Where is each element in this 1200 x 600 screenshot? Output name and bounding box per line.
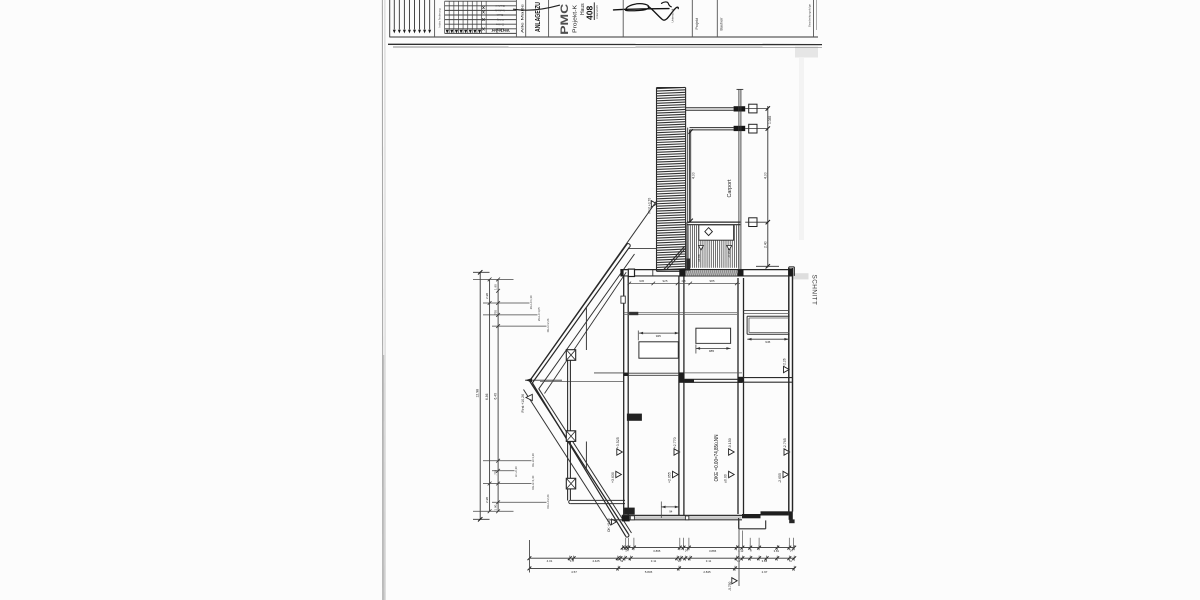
svg-text:4.00: 4.00 — [692, 172, 696, 179]
svg-text:4.00: 4.00 — [763, 172, 767, 179]
svg-text:925: 925 — [662, 279, 667, 283]
svg-text:Bearbeitungsfolge: Bearbeitungsfolge — [808, 4, 812, 27]
svg-text:Elektro: Elektro — [495, 22, 504, 26]
svg-text:1.90: 1.90 — [494, 504, 498, 510]
svg-text:PMC: PMC — [559, 4, 571, 35]
svg-text:Projekt: Projekt — [695, 18, 699, 29]
svg-text:Verteiler: Verteiler — [491, 28, 509, 33]
svg-text:KG·H=1,30: KG·H=1,30 — [531, 475, 535, 490]
svg-text:12.98: 12.98 — [476, 389, 480, 398]
svg-text:Unterschrift: Unterschrift — [595, 5, 599, 19]
svg-text:Carport: Carport — [727, 179, 733, 197]
svg-text:3.11: 3.11 — [651, 559, 657, 563]
svg-text:Unterschrift: Unterschrift — [671, 9, 675, 23]
svg-text:6.86: 6.86 — [485, 393, 489, 400]
svg-text:+3.630: +3.630 — [611, 472, 615, 483]
svg-text:H=+0,30: H=+0,30 — [514, 466, 518, 477]
svg-text:2.845: 2.845 — [703, 570, 711, 574]
svg-text:±0.00: ±0.00 — [724, 474, 728, 483]
svg-text:2G·H=1,05: 2G·H=1,05 — [537, 307, 541, 321]
svg-text:-2.655: -2.655 — [778, 473, 782, 483]
svg-text:3.865: 3.865 — [653, 549, 661, 553]
svg-text:Heizg.: Heizg. — [496, 18, 504, 22]
svg-text:+2.770: +2.770 — [673, 437, 677, 448]
svg-text:-0.150: -0.150 — [728, 438, 732, 448]
svg-text:Alle Maße: Alle Maße — [521, 4, 525, 33]
svg-text:4.57: 4.57 — [571, 570, 577, 574]
svg-text:2.40: 2.40 — [763, 241, 767, 248]
svg-text:Projekt-K: Projekt-K — [573, 4, 579, 33]
svg-text:1.5: 1.5 — [570, 559, 574, 563]
svg-text:ANLAGE ZU: ANLAGE ZU — [535, 2, 542, 32]
svg-text:475: 475 — [681, 279, 686, 283]
svg-text:1.90: 1.90 — [494, 284, 498, 290]
svg-text:-0.750: -0.750 — [728, 581, 732, 591]
svg-text:94: 94 — [669, 509, 673, 513]
svg-text:3.81: 3.81 — [774, 549, 780, 553]
svg-text:-2.765: -2.765 — [783, 438, 787, 448]
svg-text:Bauherr: Bauherr — [495, 4, 504, 8]
svg-text:3.11: 3.11 — [706, 559, 712, 563]
svg-text:985: 985 — [709, 279, 714, 283]
svg-text:+3.525: +3.525 — [616, 437, 620, 448]
svg-text:3.81: 3.81 — [762, 559, 768, 563]
svg-text:3.865: 3.865 — [709, 549, 717, 553]
svg-text:945: 945 — [639, 279, 644, 283]
svg-text:2.97: 2.97 — [762, 570, 768, 574]
svg-text:985: 985 — [709, 349, 714, 353]
svg-text:0G·H=1,30: 0G·H=1,30 — [531, 453, 535, 467]
svg-text:945: 945 — [656, 334, 661, 338]
svg-text:SCHNITT: SCHNITT — [810, 275, 817, 306]
svg-text:2.98: 2.98 — [485, 497, 489, 503]
svg-text:5.845: 5.845 — [645, 570, 653, 574]
svg-text:0G·H=2,26: 0G·H=2,26 — [546, 318, 550, 332]
svg-text:Statik: Statik — [496, 13, 503, 17]
svg-text:408: 408 — [585, 6, 595, 20]
svg-text:945: 945 — [765, 340, 770, 344]
svg-text:KG·H=2,26: KG·H=2,26 — [546, 494, 550, 509]
svg-text:-0.38: -0.38 — [727, 251, 731, 258]
svg-text:4.425: 4.425 — [592, 559, 600, 563]
svg-text:Bauherr: Bauherr — [720, 17, 724, 31]
svg-text:.755: .755 — [494, 469, 498, 475]
svg-text:Index Änderung: Index Änderung — [438, 8, 442, 27]
svg-text:-2.26: -2.26 — [783, 358, 787, 366]
svg-text:2G·H=1,30: 2G·H=1,30 — [529, 295, 533, 309]
svg-text:First +10,26: First +10,26 — [521, 394, 525, 413]
svg-text:1.085: 1.085 — [768, 116, 772, 124]
svg-text:6.40: 6.40 — [494, 393, 498, 400]
svg-text:2.98: 2.98 — [485, 293, 489, 299]
svg-text:4.01: 4.01 — [547, 559, 553, 563]
svg-text:±0.00: ±0.00 — [697, 254, 701, 262]
svg-text:Architekt: Architekt — [495, 9, 505, 13]
svg-text:+2.055: +2.055 — [668, 472, 672, 483]
svg-text:OKE =0.00=74,85ü.NN: OKE =0.00=74,85ü.NN — [714, 434, 720, 481]
